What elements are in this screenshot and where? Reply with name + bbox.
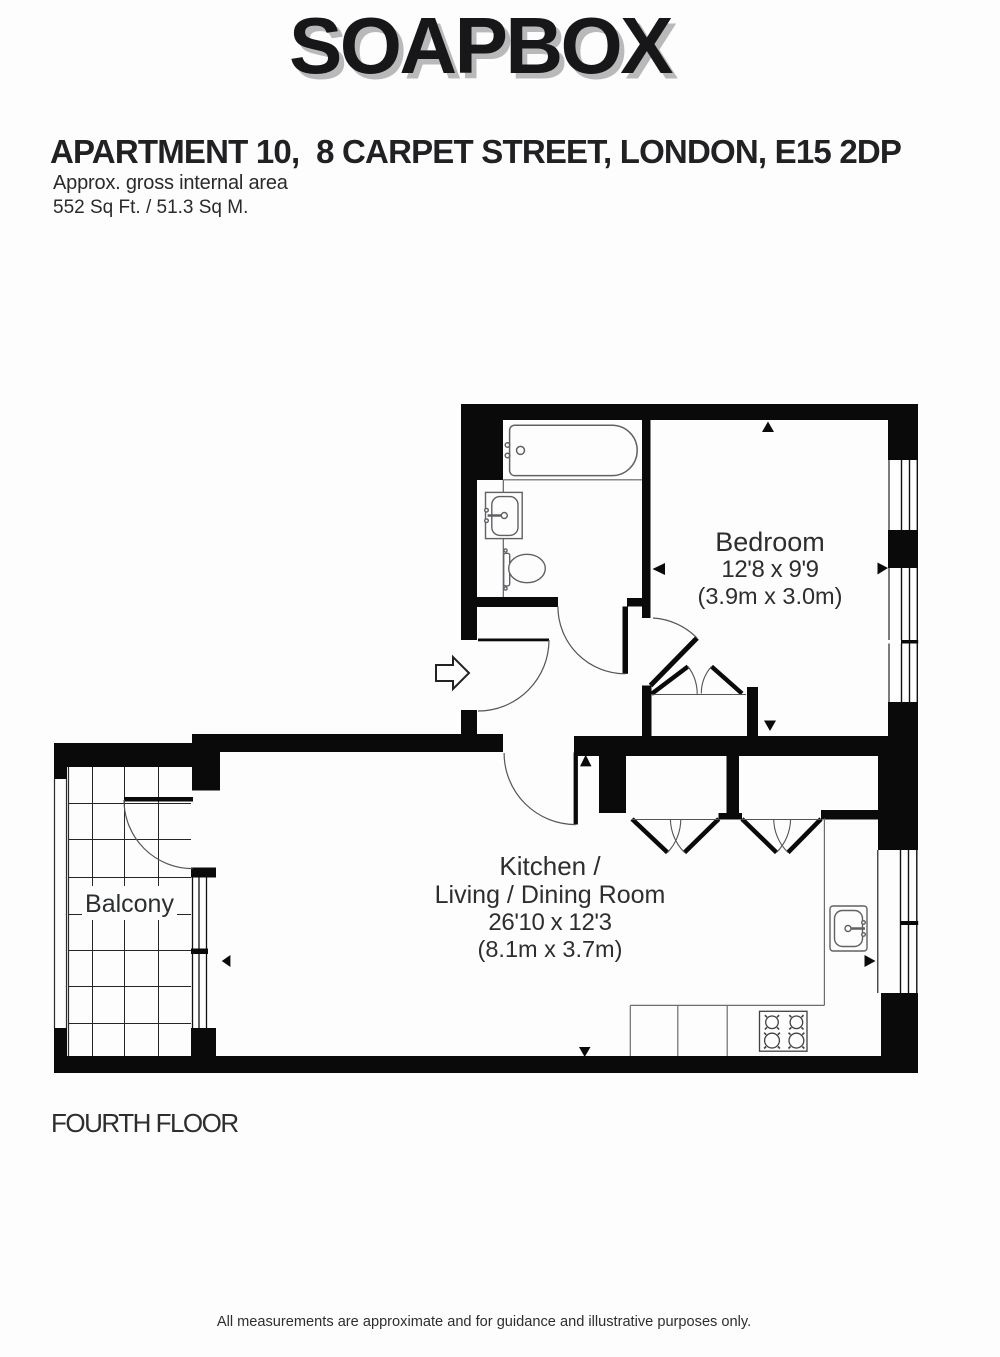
svg-text:Approx. gross internal area: Approx. gross internal area (53, 172, 289, 194)
svg-text:Bedroom: Bedroom (715, 527, 825, 557)
svg-text:(3.9m x 3.0m): (3.9m x 3.0m) (698, 583, 843, 609)
svg-text:SOAPBOX: SOAPBOX (289, 1, 673, 90)
svg-text:26'10 x 12'3: 26'10 x 12'3 (488, 909, 611, 936)
svg-text:FOURTH FLOOR: FOURTH FLOOR (51, 1108, 238, 1138)
svg-text:(8.1m x 3.7m): (8.1m x 3.7m) (478, 936, 623, 962)
svg-text:APARTMENT 10, 8 CARPET STREET: APARTMENT 10, 8 CARPET STREET, LONDON, E… (50, 133, 901, 170)
svg-text:Balcony: Balcony (85, 890, 174, 918)
svg-text:12'8 x 9'9: 12'8 x 9'9 (721, 556, 818, 583)
svg-text:Kitchen /: Kitchen / (499, 851, 601, 881)
svg-text:All measurements are approxima: All measurements are approximate and for… (217, 1314, 751, 1330)
svg-text:Living / Dining Room: Living / Dining Room (435, 881, 666, 909)
svg-text:552 Sq Ft. / 51.3 Sq M.: 552 Sq Ft. / 51.3 Sq M. (53, 197, 248, 218)
